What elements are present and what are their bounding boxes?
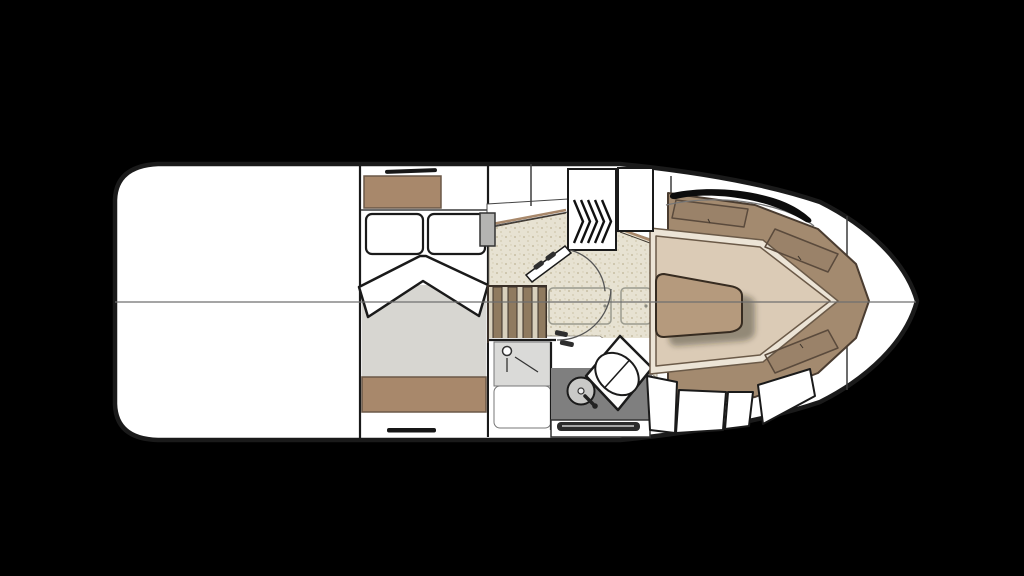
shower-drain [503, 347, 512, 356]
basin-drain [578, 388, 584, 394]
hatch-pull [644, 304, 647, 307]
boat-floorplan-diagram [0, 0, 1024, 576]
bulkhead-mirror [480, 213, 495, 246]
cabin-wardrobe-top [364, 176, 441, 208]
step-tread [538, 287, 546, 341]
deck-hatch-handle-bottom [387, 428, 436, 433]
berth-pillow-left [366, 214, 423, 254]
floorplan-stage [0, 0, 1024, 576]
step-tread [523, 287, 532, 341]
cabin-wardrobe-bottom [362, 377, 486, 412]
companionway-hatch [568, 169, 616, 250]
step-tread [493, 287, 502, 341]
faucet-knob [592, 403, 598, 409]
companionway-steps [488, 286, 546, 342]
shower-bench [494, 386, 551, 428]
stowage-locker [676, 390, 726, 433]
galley-cabinet [618, 168, 653, 231]
berth-pillow-right [428, 214, 485, 254]
stowage-locker [647, 376, 677, 433]
head-compartment [489, 330, 652, 437]
step-tread [508, 287, 517, 341]
hatch-pull [603, 304, 606, 307]
stowage-locker [725, 392, 753, 429]
